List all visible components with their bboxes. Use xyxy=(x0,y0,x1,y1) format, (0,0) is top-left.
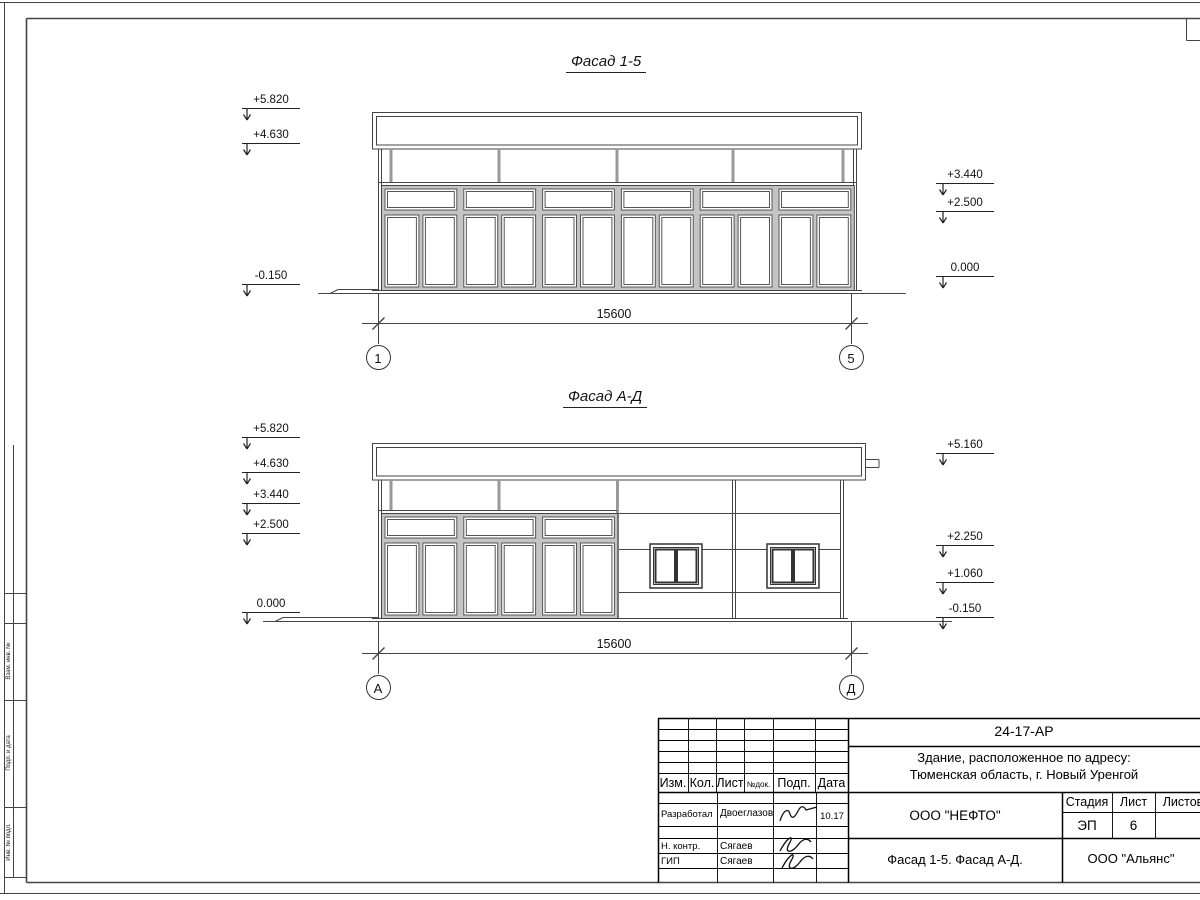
drawing-sheet: Фасад 1-5 +5.820 +4.630 -0.150 +3.440 +2… xyxy=(0,0,1200,900)
doc-number: 24-17-АР xyxy=(848,723,1200,739)
elevation-arrow-icon xyxy=(242,144,252,157)
elevation-mark: +4.630 xyxy=(242,129,300,144)
role-developer: Разработал xyxy=(661,809,713,820)
elevation-arrow-icon xyxy=(938,546,948,559)
role-gip: ГИП xyxy=(661,856,680,867)
col-header-data: Дата xyxy=(815,776,848,790)
elevation-arrow-icon xyxy=(938,277,948,290)
elevation-mark: +4.630 xyxy=(242,458,300,473)
elevation-arrow-icon xyxy=(242,109,252,122)
elevation-arrow-icon xyxy=(938,583,948,596)
elevation-arrow-icon xyxy=(938,618,948,631)
side-strip-label: Взам. инв. № xyxy=(4,623,14,699)
elevation-arrow-icon xyxy=(938,212,948,225)
elevation-arrow-icon xyxy=(242,438,252,451)
facade-a-d-dimension: 15600 xyxy=(564,637,664,651)
col-header-podp: Подп. xyxy=(773,776,815,790)
elevation-mark: +5.820 xyxy=(242,423,300,438)
stage-label: Стадия xyxy=(1062,795,1112,809)
col-header-list: Лист xyxy=(716,776,744,790)
axis-bubble-a: А xyxy=(366,675,391,700)
elevation-arrow-icon xyxy=(938,184,948,197)
client-name: ООО "НЕФТО" xyxy=(848,808,1062,823)
elevation-mark: +2.250 xyxy=(936,531,994,546)
elevation-arrow-icon xyxy=(242,613,252,626)
elevation-mark: +2.500 xyxy=(936,197,994,212)
date-developer: 10.17 xyxy=(816,811,848,822)
elevation-mark: 0.000 xyxy=(242,598,300,613)
col-header-izm: Изм. xyxy=(658,776,688,790)
elevation-arrow-icon xyxy=(242,473,252,486)
elevation-mark: +5.160 xyxy=(936,439,994,454)
col-header-kol: Кол. xyxy=(688,776,716,790)
facade-a-d-title: Фасад А-Д xyxy=(563,388,647,408)
facade-1-5-dimension: 15600 xyxy=(564,307,664,321)
object-address-line2: Тюменская область, г. Новый Уренгой xyxy=(848,767,1200,782)
elevation-arrow-icon xyxy=(938,454,948,467)
signature-gip xyxy=(782,855,813,868)
signature-ncontrol xyxy=(780,838,811,851)
sheet-title: Фасад 1-5. Фасад А-Д. xyxy=(848,852,1062,867)
elevation-mark: 0.000 xyxy=(936,262,994,277)
facade-1-5-title: Фасад 1-5 xyxy=(566,53,646,73)
elevation-mark: +2.500 xyxy=(242,519,300,534)
name-ncontrol: Сягаев xyxy=(720,841,753,852)
company-name: ООО "Альянс" xyxy=(1062,851,1200,866)
elevation-mark: +5.820 xyxy=(242,94,300,109)
linework xyxy=(0,0,1200,900)
side-strip-label: Подп. и дата xyxy=(4,700,14,806)
col-header-ndok: №док. xyxy=(744,780,773,789)
elevation-mark: +1.060 xyxy=(936,568,994,583)
elevation-arrow-icon xyxy=(242,504,252,517)
elevation-arrow-icon xyxy=(242,534,252,547)
role-ncontrol: Н. контр. xyxy=(661,841,700,852)
object-address-line1: Здание, расположенное по адресу: xyxy=(848,750,1200,765)
axis-bubble-d: Д xyxy=(839,675,864,700)
side-strip-label: Инв. № подл. xyxy=(4,807,14,877)
signature-developer xyxy=(780,807,817,821)
signatures xyxy=(780,807,817,869)
elevation-arrow-icon xyxy=(242,285,252,298)
elevation-mark: -0.150 xyxy=(936,603,994,618)
sheet-label: Лист xyxy=(1112,795,1155,809)
elevation-mark: +3.440 xyxy=(242,489,300,504)
sheets-label: Листов xyxy=(1155,795,1200,809)
name-gip: Сягаев xyxy=(720,856,753,867)
sheet-number: 6 xyxy=(1112,818,1155,833)
stage-value: ЭП xyxy=(1062,818,1112,833)
name-developer: Двоеглазов xyxy=(720,808,773,819)
elevation-mark: -0.150 xyxy=(242,270,300,285)
axis-bubble-1: 1 xyxy=(366,345,391,370)
elevation-mark: +3.440 xyxy=(936,169,994,184)
axis-bubble-5: 5 xyxy=(839,345,864,370)
